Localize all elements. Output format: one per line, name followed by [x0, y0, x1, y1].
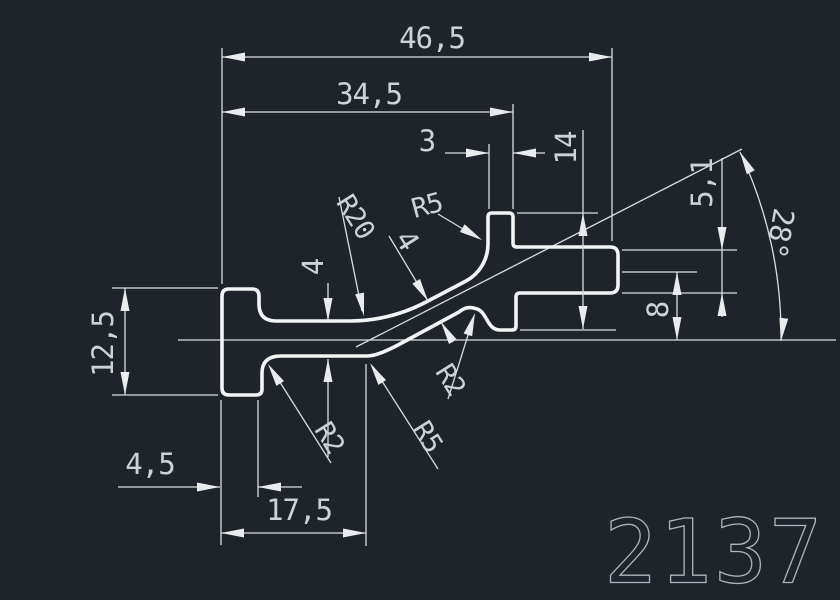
dim-radius-r5-top: R5: [408, 187, 445, 225]
arrowhead: [579, 213, 588, 236]
dim-bottom-length: 17,5: [266, 493, 332, 527]
dim-total-width: 46,5: [399, 21, 465, 55]
construction-lines: [178, 149, 836, 347]
arrowhead: [264, 362, 284, 386]
arrowhead: [460, 224, 484, 244]
arrowhead: [718, 293, 727, 316]
dim-radius-r2-left: R2: [308, 417, 350, 459]
arrowhead: [464, 312, 480, 337]
dim-web-thickness: 4: [296, 258, 330, 275]
arrowhead: [673, 272, 682, 295]
dim-head-height: 14: [549, 131, 583, 164]
arrowhead: [513, 149, 536, 158]
arrowhead: [718, 227, 727, 250]
dim-stem-width: 3: [419, 124, 435, 158]
dimension-labels: 46,5 34,5 3 14 5,1 28° 12,5 8 4 4 R20 R5…: [86, 21, 801, 527]
arrowhead: [222, 108, 245, 117]
dim-angle: 28°: [759, 206, 801, 261]
part-number: 2137: [604, 501, 824, 600]
arrowhead: [589, 53, 612, 62]
arrowhead: [736, 150, 755, 175]
dim-flange-width: 4,5: [125, 447, 174, 481]
dim-arm-thickness: 5,1: [685, 158, 719, 207]
arrowhead: [221, 529, 244, 538]
dim-radius-r5-bottom: R5: [406, 416, 448, 458]
dim-radius-r20: R20: [330, 189, 381, 244]
cad-drawing: 46,5 34,5 3 14 5,1 28° 12,5 8 4 4 R20 R5…: [0, 0, 840, 600]
arrowhead: [197, 483, 220, 492]
arrowhead: [121, 372, 130, 395]
cad-viewport: 46,5 34,5 3 14 5,1 28° 12,5 8 4 4 R20 R5…: [0, 0, 840, 600]
dim-arm-offset: 8: [641, 302, 675, 318]
dim-radius-r2-bead: R2: [429, 359, 471, 401]
arrowhead: [121, 288, 130, 311]
arrowhead: [258, 483, 281, 492]
arrowhead: [222, 53, 245, 62]
arrowhead: [777, 318, 789, 342]
arrowhead: [324, 298, 333, 321]
arrowhead: [366, 361, 386, 385]
arrowhead: [324, 359, 333, 382]
arrowhead: [466, 149, 489, 158]
dim-diagonal-thickness: 4: [388, 224, 426, 256]
arrowhead: [579, 306, 588, 329]
dim-upper-width: 34,5: [336, 77, 402, 111]
arrowhead: [673, 317, 682, 340]
arrowhead: [343, 529, 366, 538]
arrowhead: [355, 293, 368, 317]
dim-flange-height: 12,5: [86, 311, 120, 377]
dimension-lines: [118, 57, 781, 533]
arrowhead: [490, 108, 513, 117]
